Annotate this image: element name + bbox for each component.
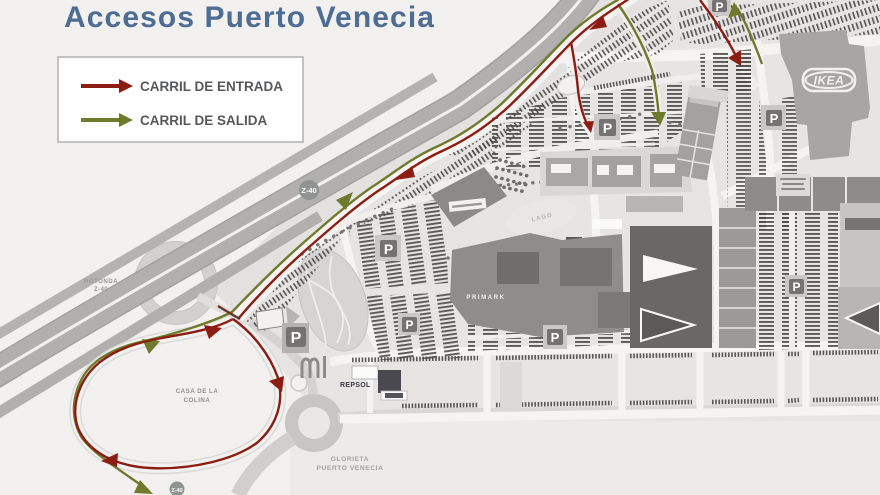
svg-text:Z-40: Z-40	[94, 286, 108, 293]
svg-text:P: P	[770, 111, 779, 126]
svg-text:P: P	[715, 0, 723, 14]
svg-text:P: P	[551, 330, 560, 345]
svg-text:PUERTO VENECIA: PUERTO VENECIA	[317, 465, 384, 472]
svg-text:P: P	[384, 241, 393, 257]
svg-text:Z-40: Z-40	[171, 488, 182, 494]
svg-text:P: P	[792, 280, 800, 294]
svg-text:Z-40: Z-40	[301, 186, 316, 195]
svg-text:PRIMARK: PRIMARK	[466, 295, 505, 301]
svg-text:P: P	[291, 330, 302, 347]
svg-text:IKEA: IKEA	[814, 74, 845, 88]
svg-text:CARRIL DE ENTRADA: CARRIL DE ENTRADA	[140, 79, 283, 94]
svg-text:COLINA: COLINA	[184, 397, 211, 404]
svg-text:GLORIETA: GLORIETA	[331, 456, 369, 463]
svg-text:REPSOL: REPSOL	[340, 382, 371, 389]
svg-text:P: P	[405, 318, 413, 332]
svg-text:CARRIL DE SALIDA: CARRIL DE SALIDA	[140, 113, 268, 128]
svg-text:P: P	[603, 120, 612, 136]
svg-text:CASA DE LA: CASA DE LA	[176, 388, 219, 395]
svg-text:Accesos Puerto Venecia: Accesos Puerto Venecia	[64, 1, 435, 34]
svg-text:ROTONDA: ROTONDA	[84, 278, 118, 285]
